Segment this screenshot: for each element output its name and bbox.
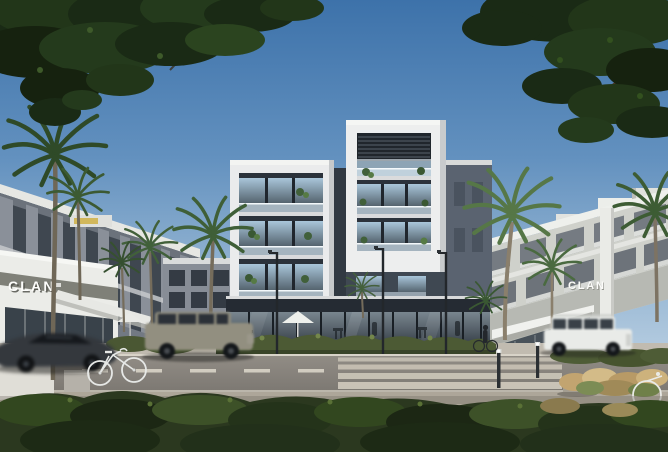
- foreground-shrubs: [0, 391, 668, 452]
- architectural-render: CLAN CLAN CLAN CLAN: [0, 0, 668, 452]
- rooftop-pergola: [357, 133, 431, 161]
- right-frame-tower: [346, 120, 446, 272]
- right-clan-sign: CLAN CLAN: [568, 280, 607, 293]
- floor: [239, 173, 323, 216]
- sign-text: CLAN: [8, 278, 56, 294]
- sign-text: CLAN: [568, 280, 606, 292]
- left-tower: [230, 160, 334, 306]
